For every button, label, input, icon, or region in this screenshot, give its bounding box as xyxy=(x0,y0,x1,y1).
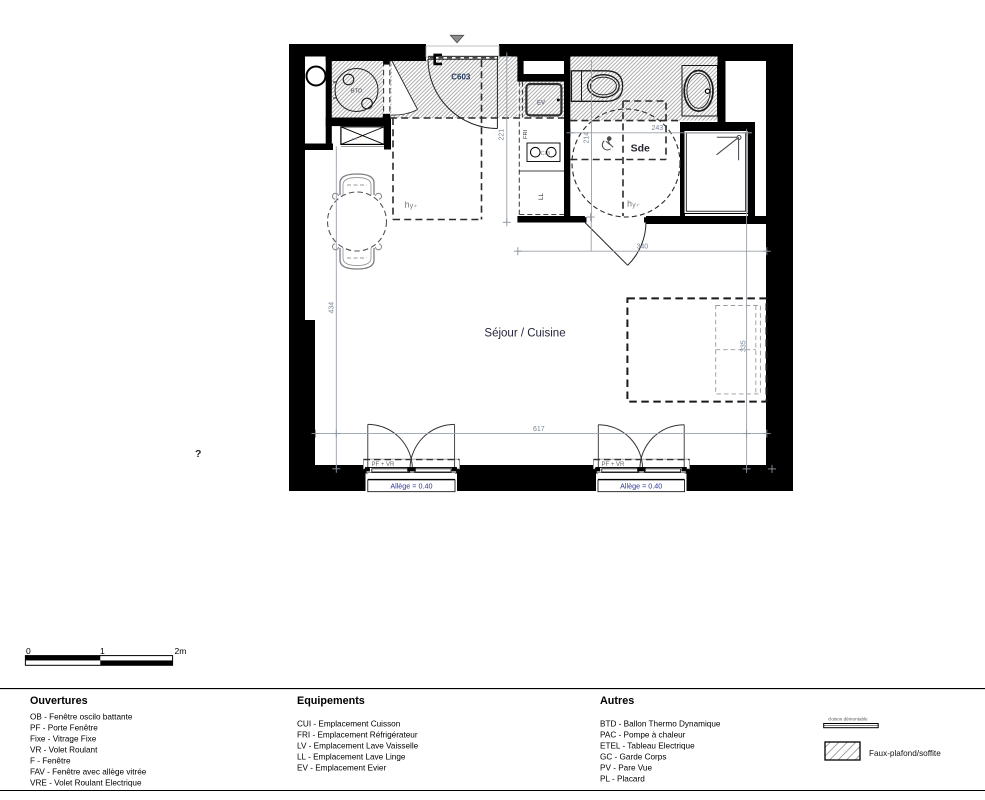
svg-text:OB - Fenêtre oscilo battante: OB - Fenêtre oscilo battante xyxy=(30,713,133,722)
svg-text:Séjour / Cuisine: Séjour / Cuisine xyxy=(484,328,565,340)
svg-text:1: 1 xyxy=(100,646,105,656)
svg-text:CUI - Emplacement Cuisson: CUI - Emplacement Cuisson xyxy=(297,720,401,729)
svg-text:Allège = 0.40: Allège = 0.40 xyxy=(390,482,432,491)
svg-text:617: 617 xyxy=(533,426,545,433)
svg-text:214: 214 xyxy=(584,132,591,144)
svg-text:340: 340 xyxy=(637,243,649,250)
svg-text:ETEL - Tableau Electrique: ETEL - Tableau Electrique xyxy=(600,742,695,751)
svg-text:cloison démontable: cloison démontable xyxy=(828,717,868,722)
svg-text:Ouvertures: Ouvertures xyxy=(30,695,88,707)
svg-text:434: 434 xyxy=(329,302,336,314)
svg-text:Equipements: Equipements xyxy=(297,695,365,707)
svg-text:VRE - Volet Roulant Electrique: VRE - Volet Roulant Electrique xyxy=(30,779,142,788)
svg-text:?: ? xyxy=(195,448,201,460)
svg-text:2m: 2m xyxy=(175,646,187,656)
svg-text:C603: C603 xyxy=(451,73,471,82)
svg-text:PAC - Pompe à chaleur: PAC - Pompe à chaleur xyxy=(600,731,686,740)
svg-text:0: 0 xyxy=(26,646,31,656)
svg-text:PV - Pare Vue: PV - Pare Vue xyxy=(600,764,652,773)
svg-text:EV: EV xyxy=(537,101,545,107)
svg-text:FRI: FRI xyxy=(523,129,529,139)
svg-text:EV - Emplacement Evier: EV - Emplacement Evier xyxy=(297,764,386,773)
svg-text:335: 335 xyxy=(741,340,748,352)
svg-text:LV - Emplacement Lave Vaissell: LV - Emplacement Lave Vaisselle xyxy=(297,742,419,751)
svg-text:PL - Placard: PL - Placard xyxy=(600,775,645,784)
svg-text:Sde: Sde xyxy=(631,143,650,155)
svg-text:FAV - Fenêtre avec allège vitr: FAV - Fenêtre avec allège vitrée xyxy=(30,768,147,777)
svg-text:PF - Porte Fenêtre: PF - Porte Fenêtre xyxy=(30,724,98,733)
svg-text:Faux-plafond/soffite: Faux-plafond/soffite xyxy=(869,749,941,758)
svg-text:BTD: BTD xyxy=(351,89,363,95)
svg-text:LL: LL xyxy=(538,193,545,200)
svg-text:F - Fenêtre: F - Fenêtre xyxy=(30,757,71,766)
svg-text:Allège = 0.40: Allège = 0.40 xyxy=(620,482,662,491)
svg-text:VR - Volet Roulant: VR - Volet Roulant xyxy=(30,746,98,755)
svg-text:BTD - Ballon Thermo Dynamique: BTD - Ballon Thermo Dynamique xyxy=(600,720,721,729)
svg-text:LL - Emplacement Lave Linge: LL - Emplacement Lave Linge xyxy=(297,753,406,762)
svg-text:Fixe - Vitrage Fixe: Fixe - Vitrage Fixe xyxy=(30,735,97,744)
svg-text:243: 243 xyxy=(652,125,664,132)
svg-text:GC - Garde Corps: GC - Garde Corps xyxy=(600,753,666,762)
svg-text:FRI - Emplacement Réfrigérateu: FRI - Emplacement Réfrigérateur xyxy=(297,731,418,740)
svg-text:CUI: CUI xyxy=(541,151,551,157)
svg-text:Autres: Autres xyxy=(600,695,634,707)
svg-text:221: 221 xyxy=(499,129,506,141)
